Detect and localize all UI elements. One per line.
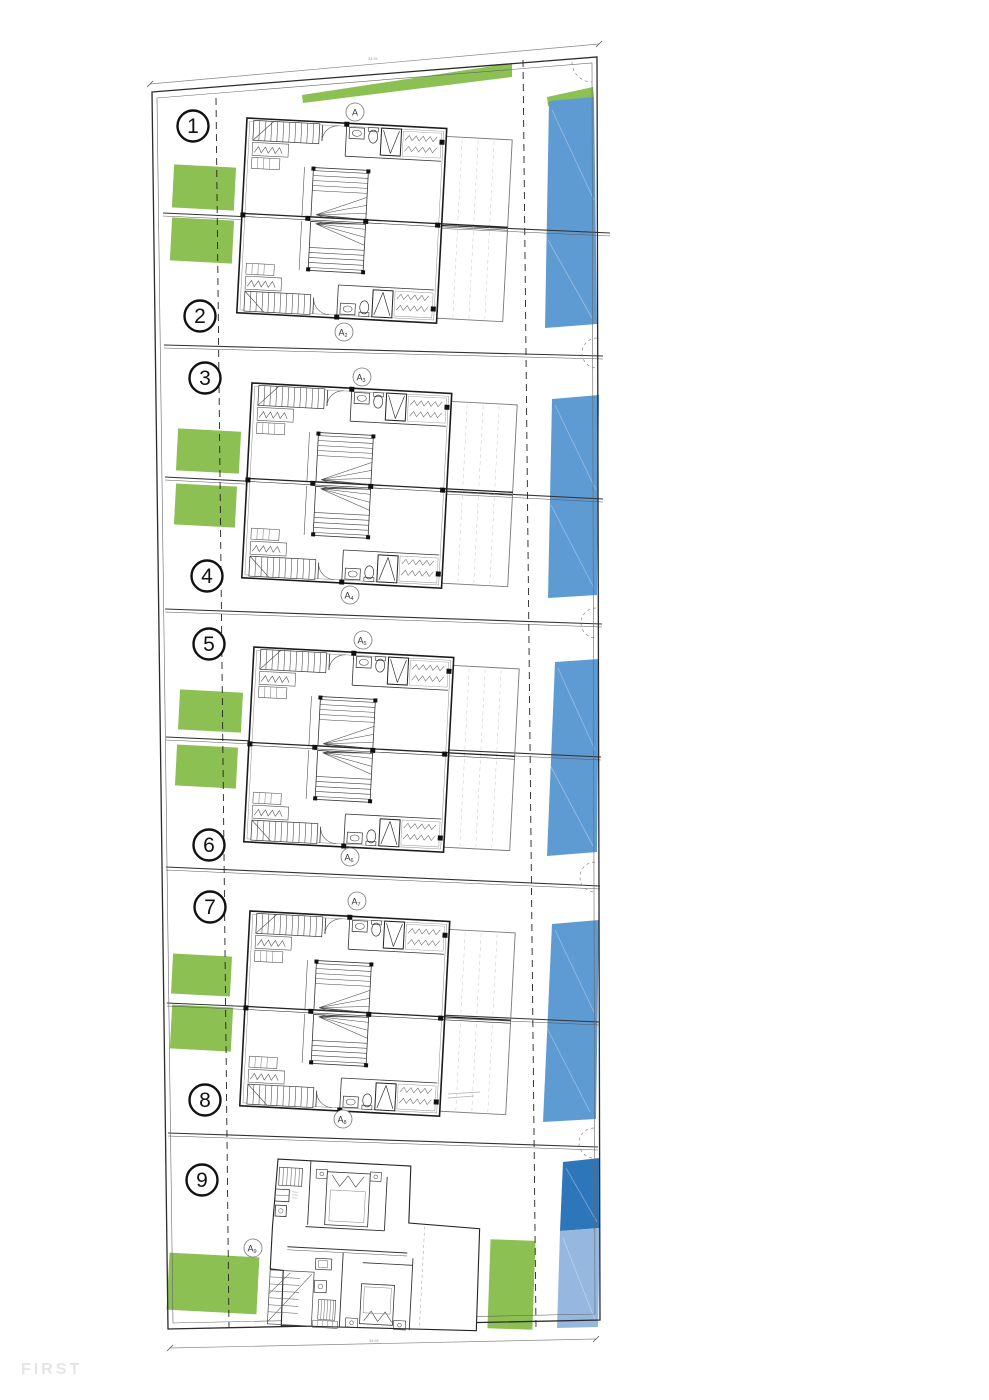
svg-text:4: 4 — [201, 565, 213, 588]
unit-badge-2: 2 — [185, 301, 216, 332]
page-background — [0, 0, 989, 1400]
unit-badge-5: 5 — [194, 629, 225, 660]
site-plan-canvas: 34.91 34.91 1 2 3 — [0, 0, 989, 1400]
section-marker-a7: A7 — [348, 892, 366, 910]
garden-unit-7 — [171, 954, 232, 997]
svg-text:8: 8 — [199, 1089, 211, 1112]
unit-badge-4: 4 — [192, 561, 223, 592]
section-marker-a4: A4 — [341, 586, 359, 604]
svg-text:1: 1 — [187, 115, 199, 138]
svg-text:9: 9 — [196, 1169, 208, 1192]
site-plan-drawing: 34.91 34.91 1 2 3 — [0, 0, 989, 1400]
pool-units-1-2 — [545, 97, 597, 328]
section-marker-a8: A8 — [334, 1110, 352, 1128]
sheet-watermark: FIRST — [21, 1361, 82, 1378]
dimension-label-bottom: 34.91 — [369, 1338, 380, 1343]
svg-text:7: 7 — [204, 896, 216, 919]
section-marker-a3: A3 — [353, 368, 371, 386]
garden-unit-6 — [175, 744, 238, 788]
section-marker-a1: A — [346, 103, 364, 121]
section-marker-a6: A6 — [341, 848, 359, 866]
svg-text:A: A — [352, 108, 358, 118]
unit-badge-7: 7 — [195, 892, 226, 923]
unit-badge-9: 9 — [187, 1165, 218, 1196]
unit-badge-6: 6 — [194, 830, 225, 861]
unit-badge-8: 8 — [190, 1085, 221, 1116]
garden-unit-1 — [172, 164, 236, 210]
garden-unit-3 — [176, 428, 241, 473]
garden-unit-4 — [174, 483, 237, 527]
section-marker-a5: A5 — [354, 631, 372, 649]
svg-text:6: 6 — [203, 834, 215, 857]
svg-text:5: 5 — [203, 633, 215, 656]
unit-badge-3: 3 — [190, 363, 221, 394]
pool-unit-9-dark — [560, 1158, 600, 1231]
garden-unit-9-left — [167, 1253, 260, 1315]
garden-unit-8 — [170, 1004, 233, 1051]
unit-badge-1: 1 — [178, 111, 209, 142]
svg-text:2: 2 — [194, 305, 206, 328]
section-marker-a9: A9 — [244, 1239, 262, 1257]
garden-unit-5 — [178, 689, 243, 732]
section-marker-a2: A2 — [335, 323, 353, 341]
svg-text:3: 3 — [199, 367, 211, 390]
garden-unit-2 — [170, 217, 234, 263]
dimension-label-top: 34.91 — [368, 56, 379, 61]
pool-units-5-6 — [547, 659, 599, 856]
